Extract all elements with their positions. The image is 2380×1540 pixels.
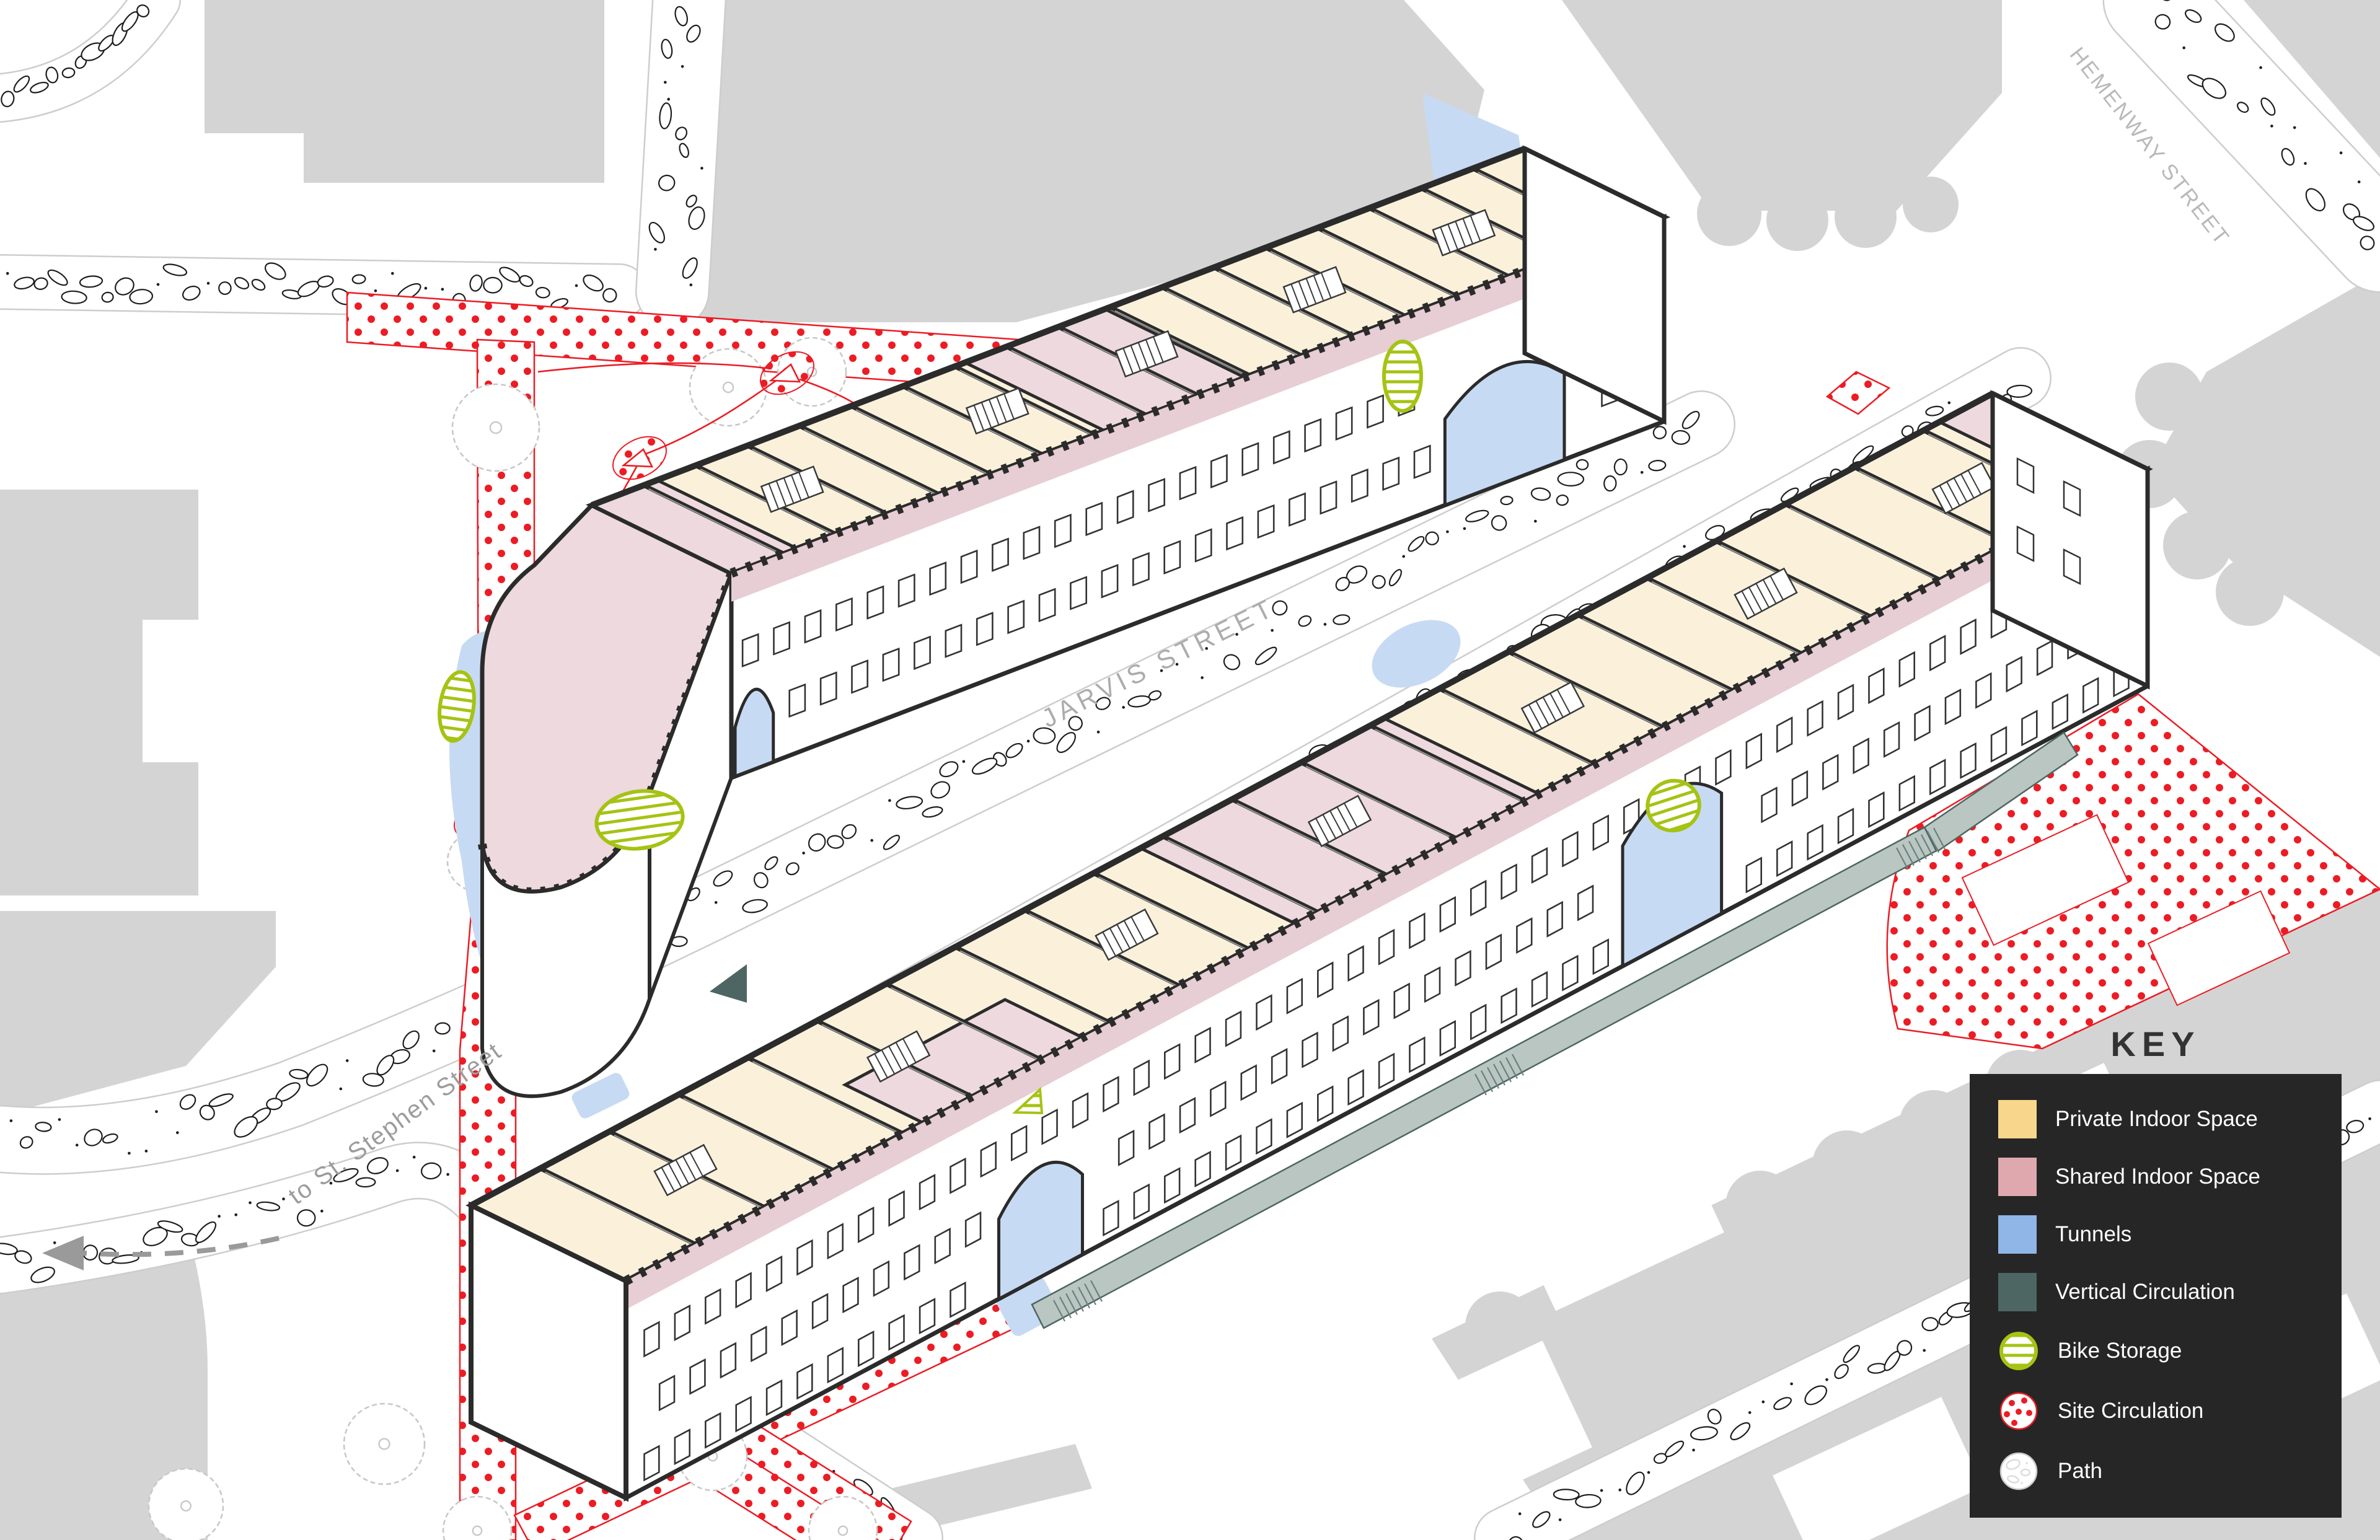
legend-item-tunnels: Tunnels [1998, 1215, 2329, 1254]
pink-square-swatch [1998, 1158, 2037, 1196]
legend-item-path: Path [1998, 1451, 2329, 1492]
legend-item-label: Path [2058, 1459, 2102, 1484]
pebble-circle-icon [1998, 1451, 2039, 1492]
legend-box: Private Indoor Space Shared Indoor Space… [1970, 1074, 2342, 1518]
legend-item-vertical-circulation: Vertical Circulation [1998, 1273, 2329, 1311]
legend-item-label: Vertical Circulation [2055, 1280, 2235, 1305]
legend-title: KEY [1970, 1024, 2342, 1064]
green-striped-circle-icon [1998, 1331, 2039, 1371]
legend-item-label: Site Circulation [2058, 1399, 2203, 1423]
blue-square-swatch [1998, 1215, 2037, 1254]
legend-item-bike-storage: Bike Storage [1998, 1331, 2329, 1371]
teal-square-swatch [1998, 1273, 2037, 1311]
legend: KEY Private Indoor Space Shared Indoor S… [1970, 1024, 2342, 1518]
red-dotted-circle-icon [1998, 1391, 2039, 1432]
site-plan-page: JARVIS STREET HEMENWAY STREET to St. Ste… [0, 0, 2380, 1540]
legend-item-private-indoor-space: Private Indoor Space [1998, 1100, 2329, 1138]
legend-item-label: Shared Indoor Space [2055, 1164, 2260, 1189]
legend-item-site-circulation: Site Circulation [1998, 1391, 2329, 1432]
legend-item-label: Bike Storage [2058, 1339, 2182, 1363]
legend-item-shared-indoor-space: Shared Indoor Space [1998, 1158, 2329, 1196]
legend-item-label: Tunnels [2055, 1222, 2131, 1247]
legend-item-label: Private Indoor Space [2055, 1107, 2258, 1132]
yellow-square-swatch [1998, 1100, 2037, 1138]
